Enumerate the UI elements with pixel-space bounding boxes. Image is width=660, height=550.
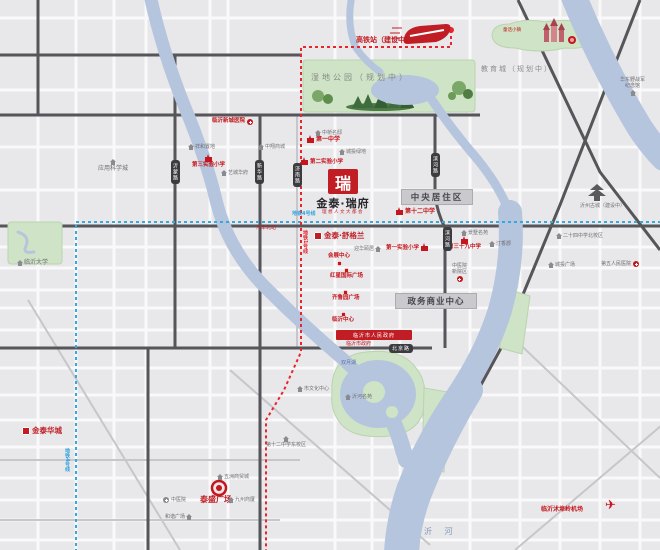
commercial-label: 和谐广场 [165, 515, 185, 520]
school-icon [205, 157, 212, 162]
house-icon [218, 477, 222, 480]
hospital-cross-icon [457, 276, 463, 282]
house-icon [18, 263, 22, 266]
government-sub-label: 临沂市政府 [346, 342, 371, 347]
house-icon [284, 439, 288, 442]
hospital-label: 中医院 [171, 498, 186, 503]
moon-lake-label: 双月湖 [341, 359, 356, 366]
poi-label: 中桥名邸 [322, 131, 342, 136]
commercial-label: 临沂中心 [332, 318, 354, 324]
university-park-area [8, 222, 62, 264]
yi-river-label: 沂 河 [424, 526, 458, 537]
road-name-capsule: 济南路 [293, 163, 302, 187]
poi-label: 汀香郡 [496, 242, 511, 247]
poi-label: 城投绿地 [346, 150, 366, 155]
hospital-cross-icon [247, 119, 253, 125]
house-icon [259, 147, 263, 150]
house-icon [490, 244, 494, 247]
road-name-capsule: 滨河路 [443, 227, 452, 251]
house-icon [298, 389, 302, 392]
memorial-label-line2: 纪念馆 [625, 84, 640, 89]
jintai-crest-icon [314, 232, 322, 240]
poi-label: 城投广场 [555, 263, 575, 268]
school-icon [461, 239, 468, 244]
hospital-cross-icon [633, 261, 639, 267]
wetland-park-label: 湿地公园（规划中） [311, 72, 410, 83]
house-icon [462, 233, 466, 236]
house-icon [346, 397, 350, 400]
hospital-label: 第五人民医院 [601, 262, 631, 267]
school-icon [307, 138, 314, 143]
metro-line1-label: 地铁1号线 [302, 230, 307, 253]
house-icon [376, 249, 380, 252]
poi-label: 景墅名苑 [468, 231, 488, 236]
house-icon [222, 173, 226, 176]
school-label: 第十二中学东校区 [266, 443, 306, 448]
road-name-capsule: 沂蒙路 [171, 160, 180, 184]
poi-label: 市文化中心 [304, 387, 329, 392]
poi-label: 艺城华府 [228, 171, 248, 176]
project-huacheng-label: 金泰华城 [32, 427, 62, 435]
school-icon [421, 246, 428, 251]
hospital-label-line2: 新院区 [452, 270, 467, 275]
house-icon [557, 236, 561, 239]
road-name-capsule: 滨河路 [431, 153, 440, 177]
school-label: 第一中学 [316, 137, 340, 143]
castle-town-label: 童话小镇 [503, 27, 521, 33]
project-tagline: 理想人文大都会 [308, 209, 378, 215]
commercial-label: 齐鲁园广场 [332, 296, 360, 302]
government-box: 临沂市人民政府 [336, 330, 412, 340]
science-city-label: 应用科学城 [98, 166, 128, 172]
school-label: 第二实验小学 [310, 160, 343, 166]
education-city-label: 教育城（规划中） [481, 64, 553, 74]
commercial-label: 五洲商贸城 [224, 475, 249, 480]
hospital-cross-icon [163, 497, 169, 503]
poi-label: 中翔商城 [265, 145, 285, 150]
house-icon [340, 152, 344, 155]
school-label: 第十二中学 [405, 209, 435, 215]
project-logo-seal: 瑞 [328, 169, 358, 194]
central-residential-district-box: 中央居住区 [401, 189, 473, 205]
school-label: 二十四中学北校区 [563, 234, 603, 239]
commercial-label: 九州商厦 [235, 498, 255, 503]
house-icon [631, 93, 635, 96]
building-icon [337, 261, 342, 266]
commercial-label: 会展中心 [328, 254, 350, 260]
house-icon [187, 517, 191, 520]
project-shugelan-label: 金泰·舒格兰 [324, 232, 364, 240]
location-map: 瑞 金泰·瑞府 理想人文大都会 中央居住区 政务商业中心 湿地公园（规划中） 教… [0, 0, 660, 550]
airplane-icon: ✈ [605, 498, 616, 513]
house-icon [229, 500, 233, 503]
ancient-city-label: 沂州古城（建设中） [580, 202, 625, 209]
house-icon [549, 265, 553, 268]
commercial-label: 红星国际广场 [330, 274, 363, 280]
school-icon [396, 210, 403, 215]
school-label: 第三实验小学 [192, 163, 225, 169]
north-bus-station-label: 汽车北站 [256, 226, 276, 231]
school-label: 第一实验小学 [386, 246, 419, 252]
road-name-capsule: 北京路 [389, 344, 413, 353]
hospital-label: 临沂新城医院 [212, 119, 245, 125]
airport-label: 临沂沭埠岭机场 [541, 507, 583, 513]
school-icon [301, 160, 308, 165]
school-label: 第三十九中学 [448, 245, 481, 251]
house-icon [111, 162, 115, 165]
hsr-station-label: 高铁站（建设中） [356, 37, 412, 44]
gov-business-center-box: 政务商业中心 [395, 293, 477, 309]
road-name-capsule: 新华路 [255, 160, 264, 184]
house-icon [189, 147, 193, 150]
poi-label: 祥和置地 [195, 145, 215, 150]
jintai-crest-icon [22, 427, 30, 435]
house-icon [316, 133, 320, 136]
metro-line4-label-vertical: 地铁4号线 [64, 448, 69, 471]
poi-label: 迎华颐居 [354, 247, 374, 252]
poi-label: 沂河名苑 [352, 395, 372, 400]
university-label: 临沂大学 [24, 260, 48, 266]
